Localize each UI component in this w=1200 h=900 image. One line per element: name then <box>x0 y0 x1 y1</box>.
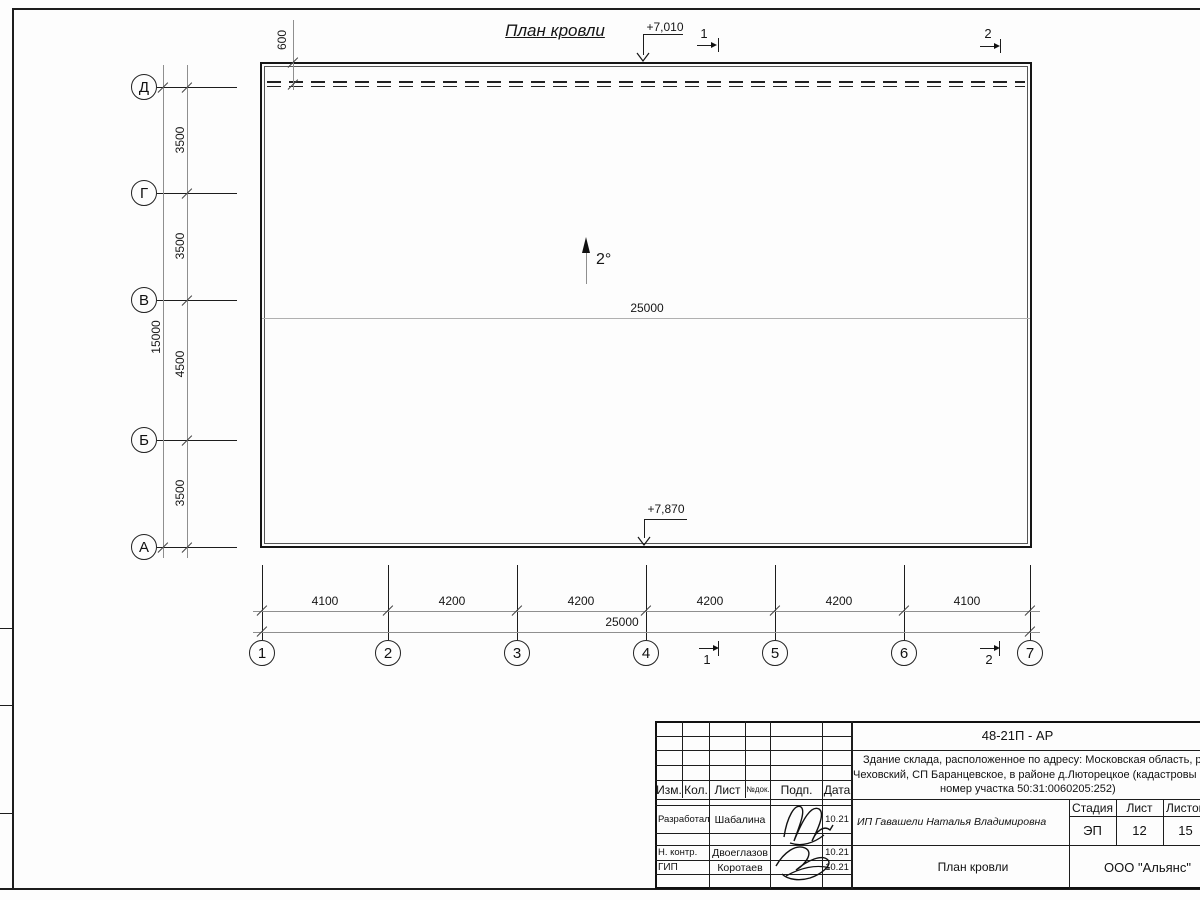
roof-mid-line <box>262 318 1030 319</box>
frame-top-line <box>12 8 1200 10</box>
section-mark-line <box>699 648 714 649</box>
axis-label: А <box>139 539 149 556</box>
axis-line <box>775 565 776 640</box>
axis-line <box>388 565 389 640</box>
dim-value: 4500 <box>173 340 187 388</box>
axis-bubble-g: Г <box>131 180 157 206</box>
slope-value: 2° <box>596 253 611 266</box>
col-header-izm: Изм. <box>655 780 683 799</box>
signature-scribble <box>772 838 834 882</box>
roof-hidden-edge-line <box>267 86 1025 87</box>
axis-bubble-b: Б <box>131 427 157 453</box>
section-mark-1-bottom-label: 1 <box>693 653 721 666</box>
overhang-dim-line <box>293 20 294 90</box>
section-mark-2-bottom-label: 2 <box>975 653 1003 666</box>
margin-tick <box>0 628 12 629</box>
down-arrow-icon <box>636 52 650 62</box>
elevation-top-value: +7,010 <box>635 21 695 34</box>
axis-bubble-6: 6 <box>891 640 917 666</box>
axis-label: Г <box>140 185 148 202</box>
overhang-dimension: 600 <box>275 16 289 64</box>
sheet-number: 12 <box>1116 816 1163 845</box>
plan-title: План кровли <box>475 24 635 37</box>
axis-label: 5 <box>771 645 779 662</box>
axis-bubble-5: 5 <box>762 640 788 666</box>
axis-bubble-4: 4 <box>633 640 659 666</box>
axis-label: 2 <box>384 645 392 662</box>
sheet-header: Лист <box>1116 800 1163 816</box>
axis-bubble-d: Д <box>131 74 157 100</box>
slope-arrow-line <box>586 250 587 284</box>
axis-line <box>157 440 237 441</box>
axis-line <box>517 565 518 640</box>
project-description: Здание склада, расположенное по адресу: … <box>852 753 1200 797</box>
axis-bubble-3: 3 <box>504 640 530 666</box>
signer-name: Коротаев <box>710 860 770 875</box>
axis-bubble-a: А <box>131 534 157 560</box>
axis-bubble-1: 1 <box>249 640 275 666</box>
col-header-ndok: №док. <box>745 780 771 799</box>
axis-bubble-7: 7 <box>1017 640 1043 666</box>
col-header-list: Лист <box>709 780 746 799</box>
elevation-top-shelf <box>643 34 683 35</box>
section-mark-2-top-label: 2 <box>974 27 1002 40</box>
titleblock-line <box>655 750 1200 751</box>
axis-line <box>157 547 237 548</box>
section-mark-line <box>980 648 995 649</box>
axis-line <box>157 193 237 194</box>
axis-label: В <box>139 292 149 309</box>
down-arrow-icon <box>637 536 651 546</box>
axis-bubble-2: 2 <box>375 640 401 666</box>
dim-value: 3500 <box>173 116 187 164</box>
axis-line <box>157 87 237 88</box>
titleblock-line <box>655 765 851 766</box>
description-line: Здание склада, расположенное по адресу: … <box>852 753 1200 768</box>
axis-label: Д <box>139 79 149 96</box>
dim-value: 4200 <box>422 595 482 608</box>
dim-value: 3500 <box>173 469 187 517</box>
axis-bubble-v: В <box>131 287 157 313</box>
dim-value: 4100 <box>295 595 355 608</box>
role-label: Разработал <box>656 806 710 833</box>
sheets-header: Листов <box>1163 800 1200 816</box>
client-name: ИП Гавашели Наталья Владимировна <box>852 799 1069 845</box>
elevation-bottom-value: +7,870 <box>636 503 696 516</box>
description-line: номер участка 50:31:0060205:252) <box>852 782 1200 797</box>
drawing-sheet: План кровли 25000 2° +7,010 +7,870 1 2 1… <box>0 0 1200 900</box>
axis-line <box>904 565 905 640</box>
right-arrow-icon <box>711 42 717 48</box>
frame-left-line <box>12 8 14 889</box>
axis-label: 6 <box>900 645 908 662</box>
sheet-title: План кровли <box>852 845 1069 889</box>
titleblock-line <box>655 736 851 737</box>
signer-name: Двоеглазов <box>710 845 770 860</box>
sheets-total: 15 <box>1163 816 1200 845</box>
section-mark-bar <box>718 38 720 52</box>
signer-name: Шабалина <box>710 806 770 833</box>
section-mark-line <box>980 46 995 47</box>
axis-label: 7 <box>1026 645 1034 662</box>
section-mark-line <box>697 45 712 46</box>
axis-label: 1 <box>258 645 266 662</box>
document-code: 48-21П - АР <box>852 721 1200 750</box>
dim-total-value: 15000 <box>149 313 163 361</box>
elevation-bottom-shelf <box>644 519 687 520</box>
section-mark-bar <box>1000 39 1002 53</box>
axis-label: Б <box>139 432 149 449</box>
dim-value: 3500 <box>173 222 187 270</box>
margin-tick <box>0 813 12 814</box>
section-mark-1-top-label: 1 <box>690 27 718 40</box>
axis-line <box>157 300 237 301</box>
roof-mid-dimension: 25000 <box>617 302 677 315</box>
role-label: Н. контр. <box>656 845 710 860</box>
margin-tick <box>0 705 12 706</box>
roof-hidden-edge-line <box>267 81 1025 83</box>
slope-arrow-head-icon <box>582 237 590 253</box>
dim-line-bottom-total <box>253 632 1040 633</box>
organization-name: ООО "Альянс" <box>1069 845 1200 889</box>
col-header-kol: Кол. <box>682 780 710 799</box>
dim-value: 4200 <box>809 595 869 608</box>
dim-value: 4200 <box>680 595 740 608</box>
dim-line-left-total <box>163 65 164 558</box>
role-label: ГИП <box>656 860 710 875</box>
stage-header: Стадия <box>1069 800 1116 816</box>
description-line: Чеховский, СП Баранцевское, в районе д.Л… <box>852 768 1200 783</box>
axis-label: 4 <box>642 645 650 662</box>
dim-total-value: 25000 <box>592 616 652 629</box>
stage-value: ЭП <box>1069 816 1116 845</box>
dim-value: 4200 <box>551 595 611 608</box>
axis-label: 3 <box>513 645 521 662</box>
dim-value: 4100 <box>937 595 997 608</box>
